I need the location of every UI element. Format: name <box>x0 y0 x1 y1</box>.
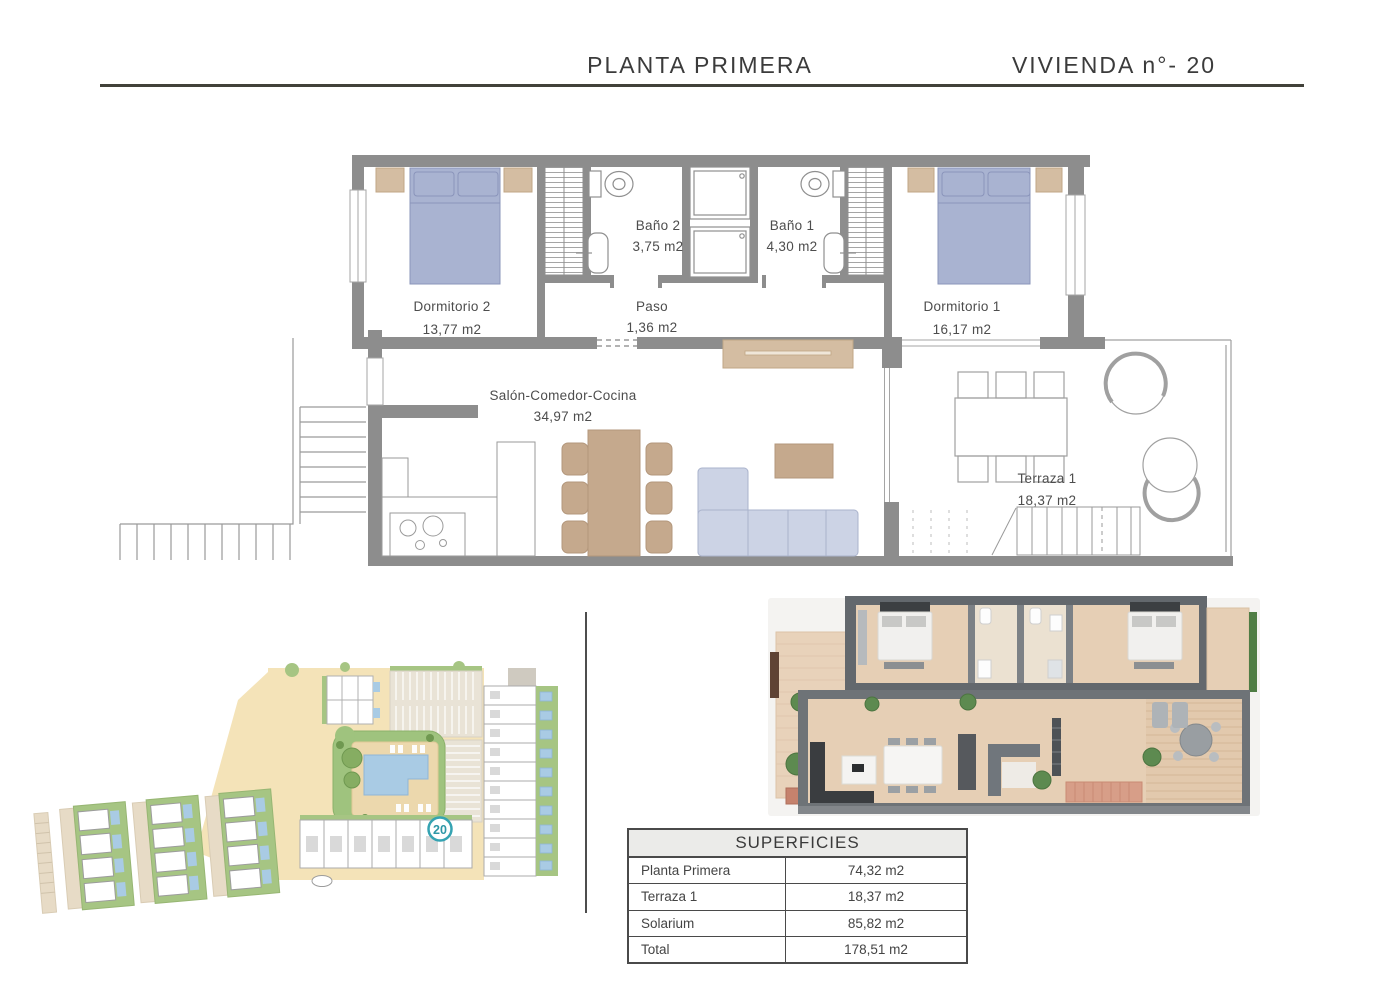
sofa-group <box>698 340 858 556</box>
render-3d <box>768 596 1260 816</box>
surfaces-table-title: SUPERFICIES <box>629 830 966 858</box>
site-plan: 20 <box>34 661 558 913</box>
label-bano2-area: 3,75 m2 <box>633 239 684 254</box>
label-terraza: Terraza 1 <box>1018 471 1077 486</box>
row-label: Terraza 1 <box>629 884 786 909</box>
kitchen-counters <box>382 442 535 556</box>
row-label: Total <box>629 937 786 962</box>
table-row: Total 178,51 m2 <box>629 937 966 962</box>
row-value: 85,82 m2 <box>786 911 966 936</box>
table-row: Solarium 85,82 m2 <box>629 911 966 937</box>
table-row: Terraza 1 18,37 m2 <box>629 884 966 910</box>
unit-badge: 20 <box>429 818 452 841</box>
bed-dormitorio1 <box>908 168 1062 284</box>
terrace-stairs <box>913 507 1140 555</box>
label-salon: Salón-Comedor-Cocina <box>489 388 636 403</box>
row-label: Planta Primera <box>629 858 786 883</box>
unit-badge-number: 20 <box>433 823 447 837</box>
row-label: Solarium <box>629 911 786 936</box>
row-value: 74,32 m2 <box>786 858 966 883</box>
label-paso-area: 1,36 m2 <box>627 320 678 335</box>
render-living-block <box>798 690 1250 814</box>
label-dormitorio1-area: 16,17 m2 <box>933 322 992 337</box>
row-value: 178,51 m2 <box>786 937 966 962</box>
row-value: 18,37 m2 <box>786 884 966 909</box>
label-dormitorio2: Dormitorio 2 <box>413 299 490 314</box>
entry-door-dashed <box>597 337 637 349</box>
label-dormitorio2-area: 13,77 m2 <box>423 322 482 337</box>
label-bano1: Baño 1 <box>770 218 815 233</box>
label-paso: Paso <box>636 299 668 314</box>
label-terraza-area: 18,37 m2 <box>1018 493 1077 508</box>
render-bedroom-block <box>845 596 1257 692</box>
table-row: Planta Primera 74,32 m2 <box>629 858 966 884</box>
label-bano1-area: 4,30 m2 <box>767 239 818 254</box>
surfaces-table: SUPERFICIES Planta Primera 74,32 m2 Terr… <box>627 828 968 964</box>
site-right-wing <box>484 668 558 876</box>
label-salon-area: 34,97 m2 <box>534 409 593 424</box>
site-pool-island <box>333 726 445 829</box>
label-bano2: Baño 2 <box>636 218 681 233</box>
floorplan-2d: Dormitorio 2 13,77 m2 Baño 2 3,75 m2 Bañ… <box>120 155 1233 566</box>
bed-dormitorio2 <box>376 168 532 284</box>
site-top-cluster <box>322 676 380 724</box>
exterior-stair <box>120 338 366 560</box>
plan-sheet: PLANTA PRIMERA VIVIENDA n°- 20 <box>0 0 1400 990</box>
site-left-wing <box>34 789 280 913</box>
dining-set <box>562 430 672 556</box>
label-dormitorio1: Dormitorio 1 <box>923 299 1000 314</box>
